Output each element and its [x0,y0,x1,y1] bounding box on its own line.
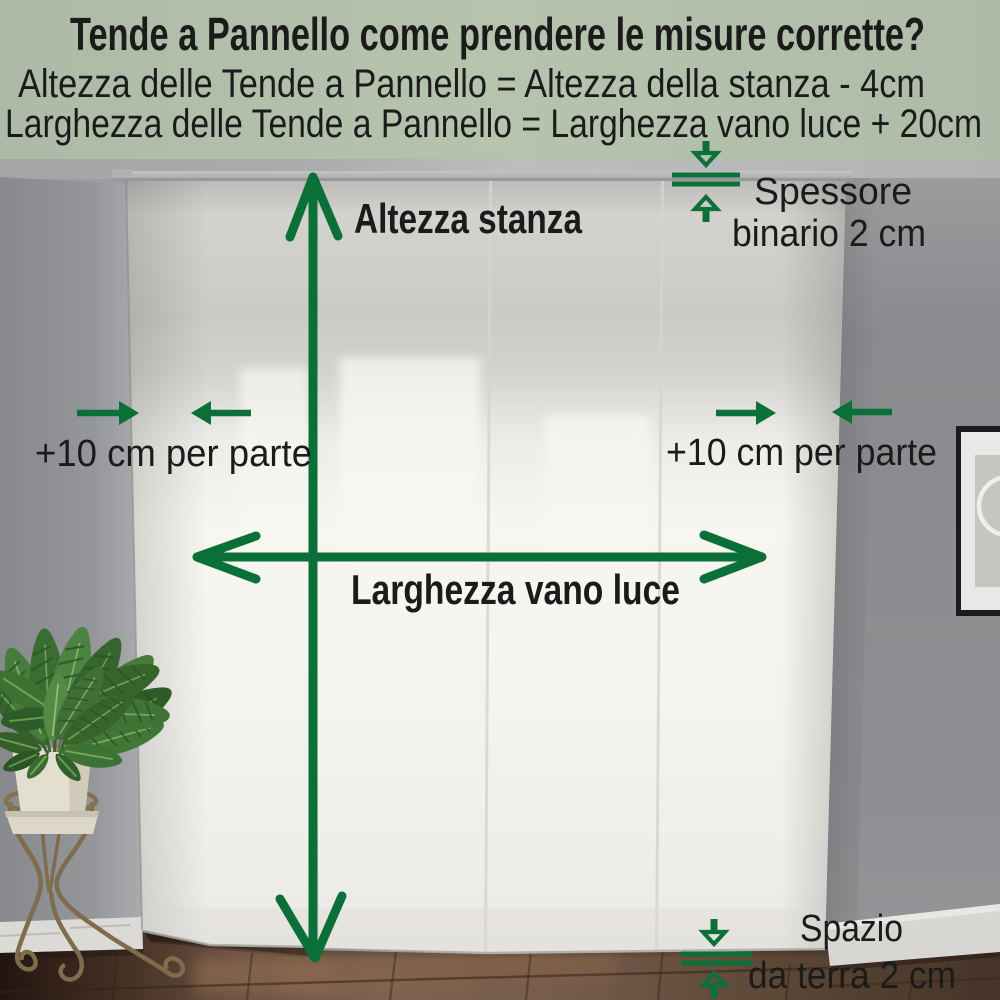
svg-text:Larghezza delle Tende a Pannel: Larghezza delle Tende a Pannello = Largh… [5,102,982,146]
svg-text:Spazio: Spazio [800,908,903,950]
svg-text:Larghezza vano luce: Larghezza vano luce [351,566,680,613]
svg-text:+10 cm per parte: +10 cm per parte [35,433,312,475]
svg-text:Tende a Pannello come prendere: Tende a Pannello come prendere le misure… [70,8,925,60]
svg-text:Altezza delle Tende a Pannello: Altezza delle Tende a Pannello = Altezza… [18,62,925,106]
svg-text:Spessore: Spessore [754,171,912,213]
svg-text:+10 cm per parte: +10 cm per parte [666,432,937,474]
svg-text:Altezza stanza: Altezza stanza [354,195,583,242]
svg-text:da terra 2 cm: da terra 2 cm [748,955,956,997]
svg-text:binario 2 cm: binario 2 cm [732,213,926,255]
